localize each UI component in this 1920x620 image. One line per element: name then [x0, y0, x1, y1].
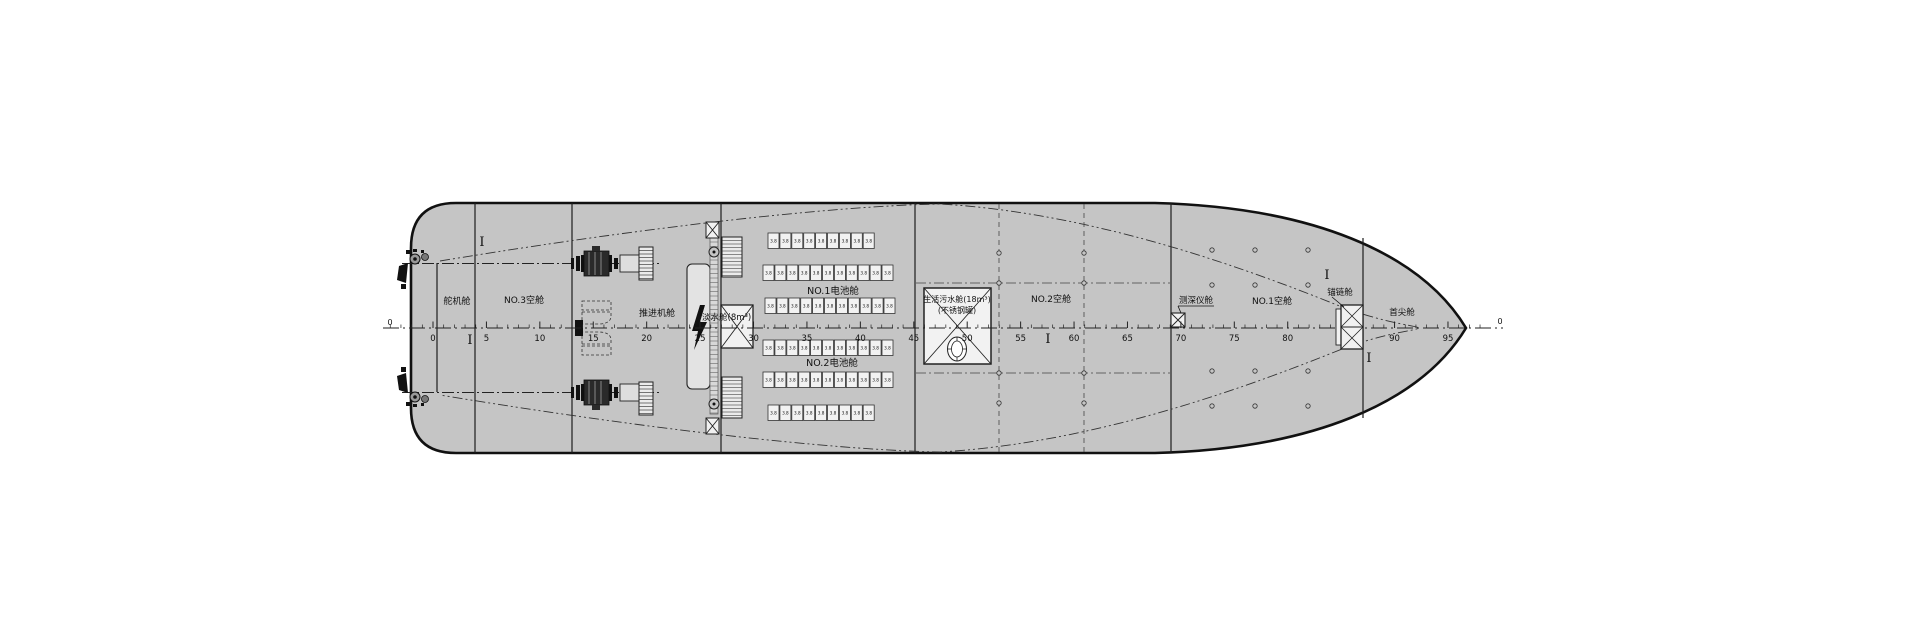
battery-cell-label: 3.8: [837, 346, 844, 351]
battery-cell-label: 3.8: [770, 239, 777, 244]
switchboard-panel: [687, 264, 710, 389]
battery-cell-label: 3.8: [801, 271, 808, 276]
pillar-circle: [1253, 283, 1257, 287]
label-void-no1: NO.1空舱: [1252, 295, 1292, 307]
label-battery-no1: NO.1电池舱: [807, 285, 859, 297]
label-sewage-2: (不锈钢罐): [938, 305, 976, 315]
battery-cell-label: 3.8: [860, 271, 867, 276]
frame-label: 40: [855, 334, 866, 344]
label-void-no3: NO.3空舱: [504, 294, 544, 306]
battery-cell-label: 3.8: [842, 239, 849, 244]
battery-cell-label: 3.8: [850, 304, 857, 309]
battery-cell-label: 3.8: [765, 346, 772, 351]
frame-label: 0: [430, 334, 435, 344]
battery-cell-label: 3.8: [765, 271, 772, 276]
battery-cell-label: 3.8: [818, 411, 825, 416]
pillar-circle: [1210, 283, 1214, 287]
battery-cell-label: 3.8: [837, 378, 844, 383]
battery-cell-label: 3.8: [848, 378, 855, 383]
battery-cell-label: 3.8: [830, 239, 837, 244]
frame-label: 95: [1443, 334, 1454, 344]
battery-cell-label: 3.8: [767, 304, 774, 309]
battery-cell-label: 3.8: [830, 411, 837, 416]
pillar-circle: [1210, 404, 1214, 408]
battery-cell-label: 3.8: [806, 411, 813, 416]
pillar-circle: [1210, 248, 1214, 252]
battery-cell-label: 3.8: [794, 411, 801, 416]
label-chain-locker: 锚链舱: [1327, 287, 1353, 298]
label-fresh-water: 淡水舱(8m³): [702, 312, 751, 323]
frame-label: 20: [641, 334, 652, 344]
label-battery-no2: NO.2电池舱: [806, 357, 858, 369]
battery-cell-label: 3.8: [801, 346, 808, 351]
battery-cell-label: 3.8: [874, 304, 881, 309]
battery-cell-label: 3.8: [865, 411, 872, 416]
label-void-no2: NO.2空舱: [1031, 293, 1071, 305]
label-sounder-room: 测深仪舱: [1179, 295, 1214, 306]
frame-label: 65: [1122, 334, 1133, 344]
battery-cell-label: 3.8: [837, 271, 844, 276]
label-fore-peak: 首尖舱: [1389, 307, 1415, 318]
battery-cell-label: 3.8: [848, 271, 855, 276]
frame-label: 90: [1389, 334, 1400, 344]
battery-cell-label: 3.8: [801, 378, 808, 383]
frame-label: 80: [1282, 334, 1293, 344]
frame-label: 25: [695, 334, 706, 344]
frame-label: 10: [534, 334, 545, 344]
frame-label: 15: [588, 334, 599, 344]
battery-cell-label: 3.8: [777, 378, 784, 383]
battery-cell-label: 3.8: [827, 304, 834, 309]
pillar-circle: [997, 371, 1001, 375]
section-mark: I: [1324, 268, 1329, 283]
ladder: [722, 237, 742, 277]
frame-label: 70: [1175, 334, 1186, 344]
pillar-circle: [1253, 404, 1257, 408]
frame-label: 60: [1069, 334, 1080, 344]
battery-cell-label: 3.8: [872, 378, 879, 383]
pillar-circle: [1210, 369, 1214, 373]
frame-label: 45: [908, 334, 919, 344]
section-mark: I: [1045, 332, 1050, 347]
battery-cell-label: 3.8: [860, 346, 867, 351]
battery-cell-label: 3.8: [815, 304, 822, 309]
frame-label: 55: [1015, 334, 1026, 344]
section-mark: I: [479, 235, 484, 250]
frame-label: 5: [484, 334, 489, 344]
battery-cell-label: 3.8: [813, 346, 820, 351]
battery-cell-label: 3.8: [825, 271, 832, 276]
battery-cell-label: 3.8: [794, 239, 801, 244]
battery-cell-label: 3.8: [825, 378, 832, 383]
battery-cell-label: 3.8: [842, 411, 849, 416]
sounder-compartment-box: [1171, 313, 1185, 327]
battery-cell-label: 3.8: [813, 271, 820, 276]
battery-cell-label: 3.8: [865, 239, 872, 244]
battery-cell-label: 3.8: [789, 271, 796, 276]
pillar-circle: [1306, 369, 1310, 373]
pillar-circle: [1306, 283, 1310, 287]
chain-locker-box: [1336, 305, 1363, 349]
frame-label: 35: [802, 334, 813, 344]
battery-cell-label: 3.8: [765, 378, 772, 383]
battery-cell-label: 3.8: [791, 304, 798, 309]
battery-cell-label: 3.8: [789, 378, 796, 383]
battery-cell-label: 3.8: [862, 304, 869, 309]
deck-plan-canvas: 3.83.83.83.83.83.83.83.83.83.83.83.83.83…: [0, 0, 1920, 620]
battery-cell-label: 3.8: [884, 346, 891, 351]
section-mark: I: [1366, 351, 1371, 366]
battery-cell-label: 3.8: [789, 346, 796, 351]
battery-cell-label: 3.8: [770, 411, 777, 416]
battery-cell-label: 3.8: [777, 271, 784, 276]
scale-right-zero: 0: [1497, 317, 1502, 326]
label-rudder-room: 舵机舱: [443, 295, 470, 307]
pillar-circle: [997, 251, 1001, 255]
battery-cell-label: 3.8: [872, 346, 879, 351]
frame-label: 30: [748, 334, 759, 344]
frame-label: 75: [1229, 334, 1240, 344]
battery-cell-label: 3.8: [848, 346, 855, 351]
battery-cell-label: 3.8: [813, 378, 820, 383]
section-mark: I: [467, 333, 472, 348]
battery-cell-label: 3.8: [872, 271, 879, 276]
battery-cell-label: 3.8: [839, 304, 846, 309]
battery-cell-label: 3.8: [886, 304, 893, 309]
battery-cell-label: 3.8: [825, 346, 832, 351]
pillar-circle: [1082, 281, 1086, 285]
battery-cell-label: 3.8: [806, 239, 813, 244]
pillar-circle: [1306, 248, 1310, 252]
pillar-circle: [1082, 251, 1086, 255]
pillar-circle: [1253, 248, 1257, 252]
label-sewage-1: 生活污水舱(18m³): [923, 294, 990, 304]
battery-cell-label: 3.8: [853, 239, 860, 244]
pillar-circle: [1082, 401, 1086, 405]
battery-cell-label: 3.8: [782, 239, 789, 244]
scale-left-zero: 0: [387, 318, 392, 327]
pillar-circle: [997, 401, 1001, 405]
frame-label: 50: [962, 334, 973, 344]
battery-cell-label: 3.8: [779, 304, 786, 309]
battery-cell-label: 3.8: [853, 411, 860, 416]
battery-cell-label: 3.8: [782, 411, 789, 416]
pillar-circle: [1306, 404, 1310, 408]
label-propulsion: 推进机舱: [639, 307, 675, 319]
battery-cell-label: 3.8: [860, 378, 867, 383]
ship-deck-plan-drawing: 3.83.83.83.83.83.83.83.83.83.83.83.83.83…: [0, 0, 1920, 620]
battery-cell-label: 3.8: [818, 239, 825, 244]
battery-cell-label: 3.8: [803, 304, 810, 309]
battery-cell-label: 3.8: [884, 271, 891, 276]
battery-cell-label: 3.8: [884, 378, 891, 383]
battery-cell-label: 3.8: [777, 346, 784, 351]
pillar-circle: [1082, 371, 1086, 375]
pillar-circle: [1253, 369, 1257, 373]
pillar-circle: [997, 281, 1001, 285]
